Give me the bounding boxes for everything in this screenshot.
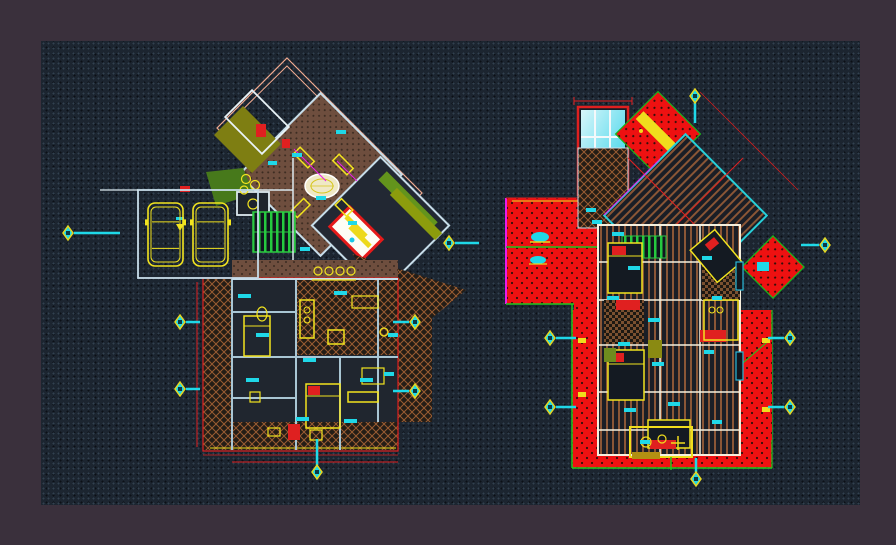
car-top-view xyxy=(190,203,231,266)
grid-axis-marker xyxy=(175,382,200,396)
cad-viewport[interactable] xyxy=(41,41,860,505)
car-top-view xyxy=(145,203,186,266)
grid-axis-marker xyxy=(175,315,200,329)
grid-axis-marker xyxy=(801,238,830,252)
drawing-frame xyxy=(0,0,896,545)
floorplan-scene xyxy=(41,41,896,545)
grid-axis-marker xyxy=(63,226,120,240)
grid-axis-marker xyxy=(444,236,479,250)
grid-axis-marker xyxy=(690,89,700,123)
ground-floor-plan xyxy=(100,58,466,462)
